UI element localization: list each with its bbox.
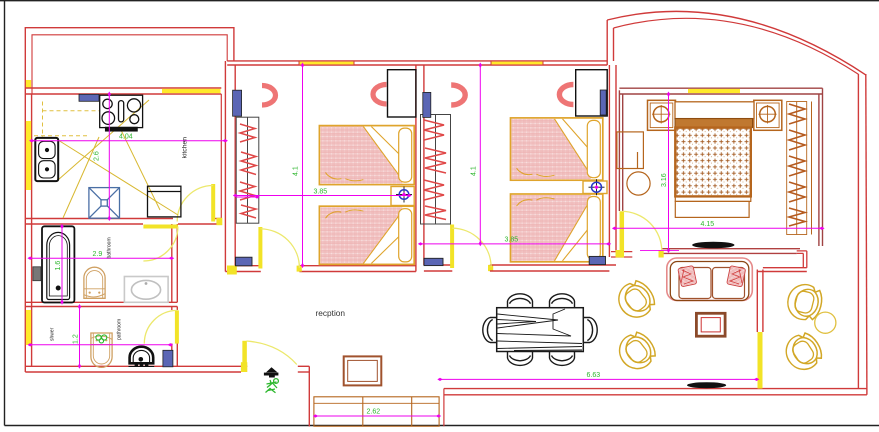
svg-text:1.6: 1.6	[55, 261, 62, 271]
svg-text:3.16: 3.16	[661, 173, 668, 187]
svg-text:2.6: 2.6	[94, 151, 101, 161]
svg-text:shwer: shwer	[50, 327, 56, 341]
svg-text:4.04: 4.04	[119, 134, 133, 141]
svg-text:3.85: 3.85	[314, 188, 328, 195]
svg-text:2.62: 2.62	[367, 409, 381, 416]
svg-text:recption: recption	[316, 308, 346, 318]
svg-text:pathroom: pathroom	[117, 319, 123, 340]
svg-text:4.1: 4.1	[470, 166, 477, 176]
svg-text:4.1: 4.1	[293, 166, 300, 176]
svg-text:2.9: 2.9	[93, 251, 103, 258]
svg-text:bathroom: bathroom	[107, 237, 113, 258]
svg-text:kitchen: kitchen	[182, 137, 189, 159]
svg-text:4.15: 4.15	[701, 221, 715, 228]
svg-text:1.2: 1.2	[73, 334, 80, 344]
svg-text:3.85: 3.85	[505, 237, 519, 244]
svg-text:6.63: 6.63	[587, 372, 601, 379]
